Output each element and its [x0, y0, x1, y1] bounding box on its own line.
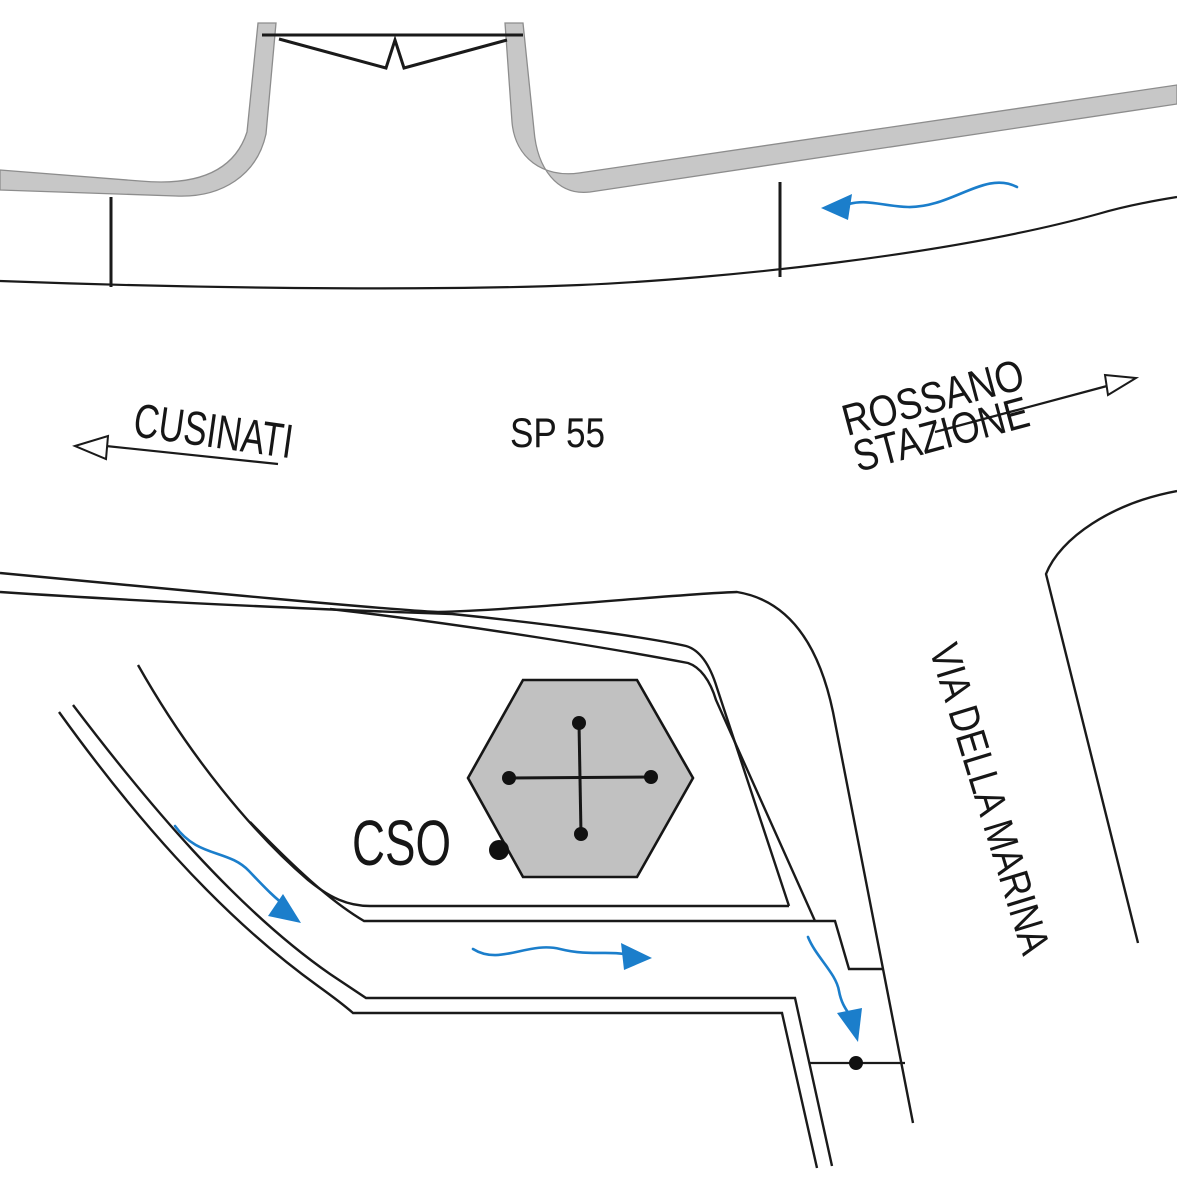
label-sp55: SP 55	[510, 409, 605, 456]
sp55-north-curb-east-band	[505, 23, 1177, 192]
sp55-north-curb-west-band	[0, 23, 276, 196]
curved-road-inner-edge	[138, 665, 789, 906]
cross-horizontal	[509, 777, 651, 778]
flow-arrow-south-icon	[808, 937, 862, 1042]
cross-dot-bottom	[574, 827, 588, 841]
curved-road-outer-edge-2	[59, 712, 817, 1168]
flow-arrow-east-icon	[473, 943, 652, 970]
via-marina-east-edge	[1046, 491, 1177, 943]
cross-dot-right	[644, 770, 658, 784]
label-via-della-marina: VIA DELLA MARINA	[920, 638, 1059, 960]
cross-dot-top	[572, 716, 586, 730]
curved-road-outer-edge-1	[73, 705, 832, 1166]
block-north-edge-and-via-marina-west-edge	[0, 573, 913, 1123]
flow-arrow-southeast-icon	[175, 826, 301, 923]
cso-entrance-dot	[489, 840, 509, 860]
bridge-gap-symbol	[262, 35, 523, 68]
label-cso: CSO	[352, 807, 451, 879]
sp55-south-edge	[0, 197, 1177, 288]
label-cusinati: CUSINATI	[130, 394, 296, 469]
road-map-sketch: CUSINATI SP 55 ROSSANO STAZIONE VIA DELL…	[0, 0, 1177, 1182]
cross-dot-left	[502, 771, 516, 785]
flow-arrow-west-icon	[821, 183, 1017, 220]
junction-dot	[849, 1056, 863, 1070]
